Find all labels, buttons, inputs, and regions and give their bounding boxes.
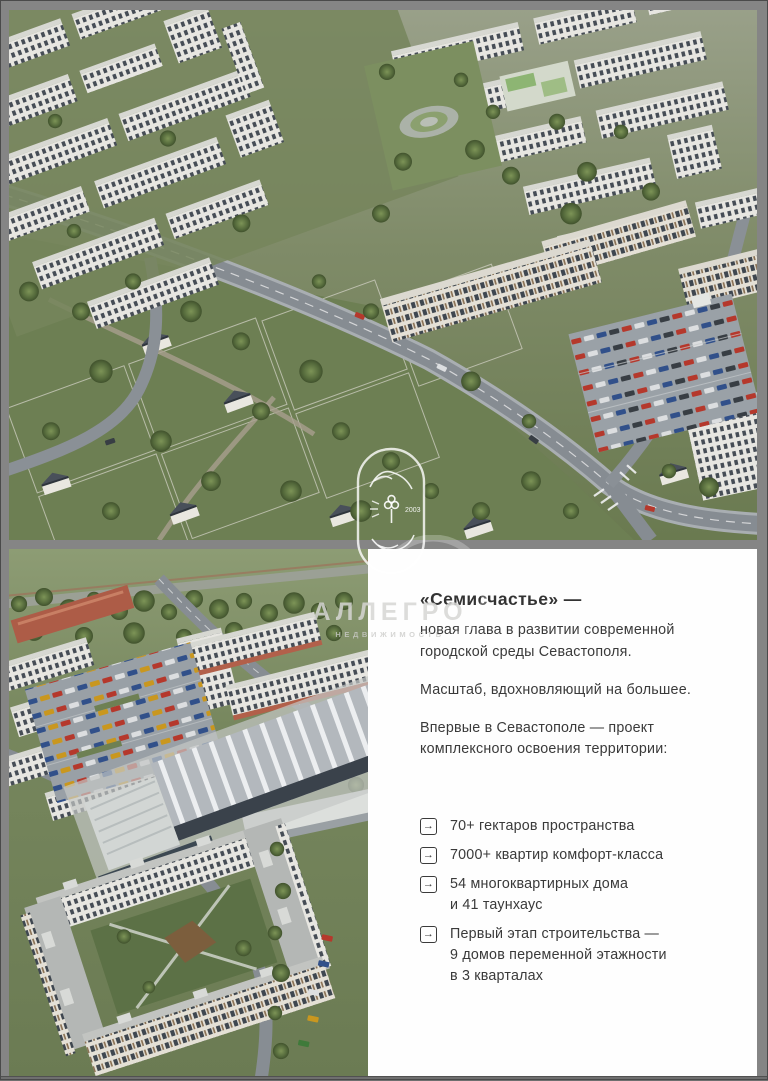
arrow-box-icon: → — [420, 876, 437, 893]
top-aerial-render — [9, 10, 757, 540]
fact-text: 70+ гектаров пространства — [450, 816, 635, 837]
info-panel: «Семисчастье» — новая глава в развитии с… — [368, 549, 757, 1076]
arrow-box-icon: → — [420, 926, 437, 943]
project-intro: новая глава в развитии современной город… — [420, 620, 723, 663]
fact-item: → 7000+ квартир комфорт-класса — [420, 845, 723, 866]
fact-text: 54 многоквартирных дома и 41 таунхаус — [450, 874, 628, 916]
arrow-box-icon: → — [420, 818, 437, 835]
fact-text: Первый этап строительства — 9 домов пере… — [450, 924, 667, 987]
project-title: «Семисчастье» — — [420, 587, 723, 611]
fact-item: → 54 многоквартирных дома и 41 таунхаус — [420, 874, 723, 916]
project-scale-line: Масштаб, вдохновляющий на большее. — [420, 680, 723, 702]
fact-text: 7000+ квартир комфорт-класса — [450, 845, 663, 866]
project-first-line: Впервые в Севастополе — проект комплексн… — [420, 718, 723, 761]
bottom-aerial-render — [9, 549, 368, 1076]
arrow-box-icon: → — [420, 847, 437, 864]
fact-item: → 70+ гектаров пространства — [420, 816, 723, 837]
page-bottom-edge — [0, 1076, 768, 1081]
top-aerial-art — [9, 10, 757, 540]
fact-item: → Первый этап строительства — 9 домов пе… — [420, 924, 723, 987]
bottom-aerial-art — [9, 549, 368, 1076]
project-facts-list: → 70+ гектаров пространства → 7000+ квар… — [420, 816, 723, 987]
